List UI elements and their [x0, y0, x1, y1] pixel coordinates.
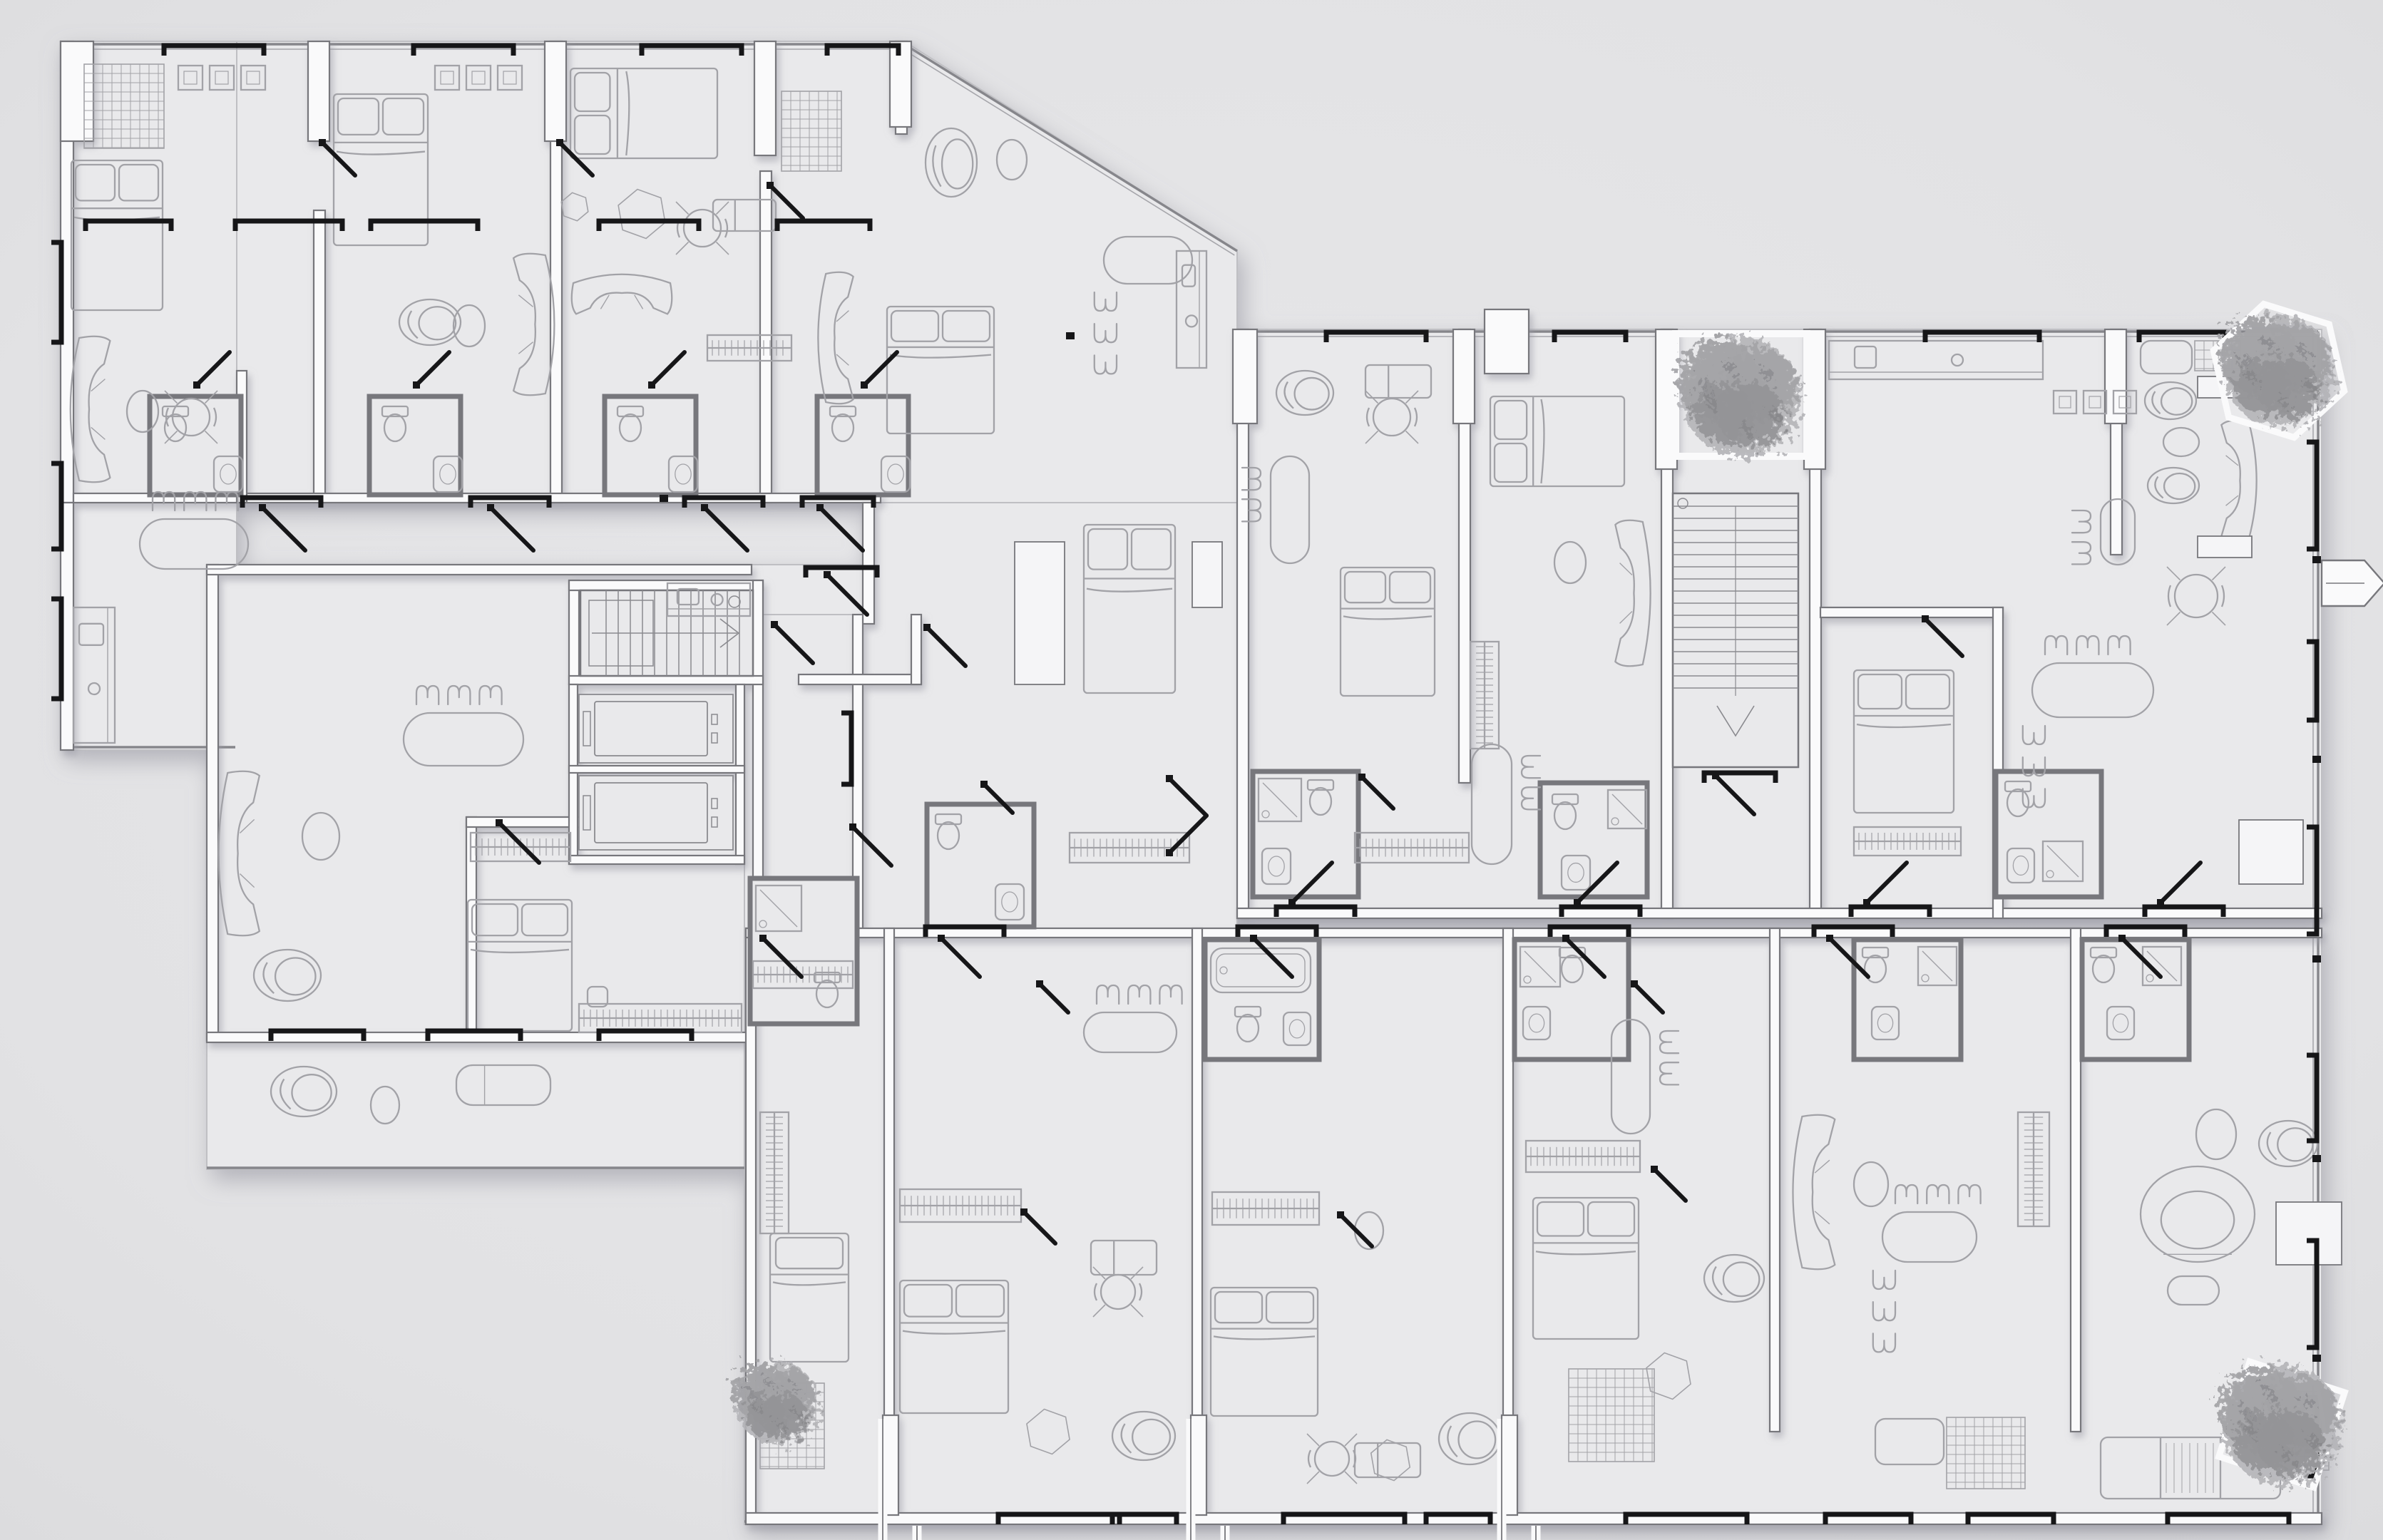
wall	[1453, 329, 1475, 423]
canopy-speck	[2282, 1452, 2294, 1464]
wall	[2071, 928, 2081, 1432]
bathroom-pod	[927, 804, 1034, 927]
door-hinge	[648, 381, 655, 389]
canopy-speck	[1768, 409, 1780, 421]
wall	[746, 1513, 2322, 1524]
door-hinge	[1826, 935, 1833, 942]
wall	[2105, 329, 2126, 423]
door-hinge	[980, 781, 988, 788]
elevator-shaft	[579, 776, 733, 850]
door-hinge	[1036, 980, 1043, 987]
sideboard	[2276, 1202, 2342, 1265]
door-hinge	[413, 381, 420, 389]
sidetable	[1192, 542, 1222, 607]
wall	[545, 41, 566, 141]
sideboard	[2239, 820, 2303, 884]
staircase	[1673, 493, 1798, 767]
canopy-speck	[2240, 354, 2251, 366]
mullion-mark	[2312, 1155, 2321, 1162]
door-hinge	[861, 381, 868, 389]
canopy-speck	[1699, 379, 1711, 391]
canopy-speck	[777, 1422, 786, 1430]
bathroom-pod	[1540, 783, 1647, 897]
bathroom-pod	[369, 396, 461, 495]
canopy-speck	[2240, 1407, 2252, 1419]
sidetable	[2239, 820, 2303, 884]
mullion-mark	[2312, 556, 2321, 563]
wall	[308, 41, 329, 141]
wall	[207, 565, 218, 1041]
door-hinge	[1922, 615, 1929, 622]
wall	[207, 1032, 752, 1042]
wall	[760, 171, 772, 503]
wall	[911, 615, 921, 684]
door-hinge	[824, 571, 831, 578]
wall	[569, 676, 763, 684]
elevator	[579, 694, 733, 763]
canopy-speck	[2245, 371, 2257, 382]
canopy-speck	[2262, 337, 2274, 349]
door-hinge	[1337, 1211, 1344, 1218]
wall	[569, 580, 763, 590]
door-hinge	[1562, 935, 1569, 942]
door-hinge	[938, 935, 945, 942]
wall	[754, 41, 776, 155]
sideboard	[1015, 542, 1065, 684]
sideboard	[1192, 542, 1222, 607]
door-hinge	[556, 139, 563, 146]
mullion-mark	[2312, 1355, 2321, 1362]
mullion-mark	[1066, 332, 1075, 339]
door-hinge	[1166, 849, 1173, 856]
door-hinge	[487, 504, 494, 511]
wall	[569, 580, 579, 684]
bathroom-pod	[150, 396, 241, 495]
wall	[569, 856, 744, 864]
canopy-speck	[2298, 346, 2310, 357]
elevator-shaft	[579, 694, 733, 763]
elevator	[579, 776, 733, 850]
door-hinge	[1631, 980, 1638, 987]
wall	[736, 684, 744, 864]
sidetable	[2198, 536, 2252, 558]
wall	[61, 41, 93, 141]
door-hinge	[923, 624, 931, 631]
mullion-mark	[2312, 756, 2321, 763]
canopy-speck	[2279, 396, 2290, 407]
door-hinge	[1358, 774, 1365, 781]
wall	[207, 565, 752, 575]
wall	[1485, 309, 1529, 374]
canopy-speck	[1723, 361, 1736, 373]
door-hinge	[259, 504, 266, 511]
wall	[884, 928, 894, 1432]
door-hinge	[816, 504, 824, 511]
bathroom-pod	[817, 396, 908, 495]
door-hinge	[193, 381, 200, 389]
door-hinge	[1250, 935, 1257, 942]
canopy-speck	[2309, 1437, 2321, 1449]
bathroom-pod	[1205, 940, 1319, 1059]
canopy-speck	[2302, 1397, 2315, 1410]
wall	[1237, 908, 2322, 918]
wall	[746, 928, 2322, 938]
door-hinge	[496, 819, 503, 826]
bathroom-pod	[1996, 771, 2101, 897]
canopy-speck	[2304, 382, 2315, 394]
canopy-speck	[796, 1412, 804, 1420]
door-hinge	[849, 823, 856, 831]
canopy-speck	[1762, 369, 1774, 381]
sideboard	[2198, 536, 2252, 558]
canopy-speck	[1706, 396, 1718, 409]
wall	[799, 674, 921, 684]
wall	[569, 766, 744, 773]
wall	[1820, 607, 2003, 617]
canopy-speck	[752, 1403, 761, 1412]
door-hinge	[319, 139, 326, 146]
mullion-mark	[660, 495, 668, 502]
door-hinge	[1651, 1166, 1658, 1173]
wall	[863, 503, 874, 624]
canopy-speck	[791, 1385, 800, 1393]
wall	[1770, 928, 1780, 1432]
wall	[1233, 329, 1257, 423]
sidetable	[2276, 1202, 2342, 1265]
canopy-speck	[1741, 423, 1753, 436]
door-hinge	[771, 621, 778, 628]
canopy-speck	[2246, 1424, 2258, 1437]
door-hinge	[767, 182, 774, 189]
canopy-speck	[2264, 1389, 2276, 1401]
sidetable	[1015, 542, 1065, 684]
door-hinge	[701, 504, 708, 511]
door-hinge	[1166, 775, 1173, 782]
bathroom-pod	[750, 878, 857, 1024]
door-hinge	[1020, 1208, 1027, 1216]
wall	[314, 210, 325, 503]
bathroom-pod	[1253, 771, 1358, 897]
bathroom-pod	[605, 396, 696, 495]
canopy-speck	[748, 1391, 757, 1400]
mullion-mark	[2312, 955, 2321, 962]
floor-plan-canvas	[0, 0, 2383, 1540]
canopy-speck	[765, 1378, 774, 1387]
door-hinge	[2118, 935, 2126, 942]
door-hinge	[759, 935, 767, 942]
